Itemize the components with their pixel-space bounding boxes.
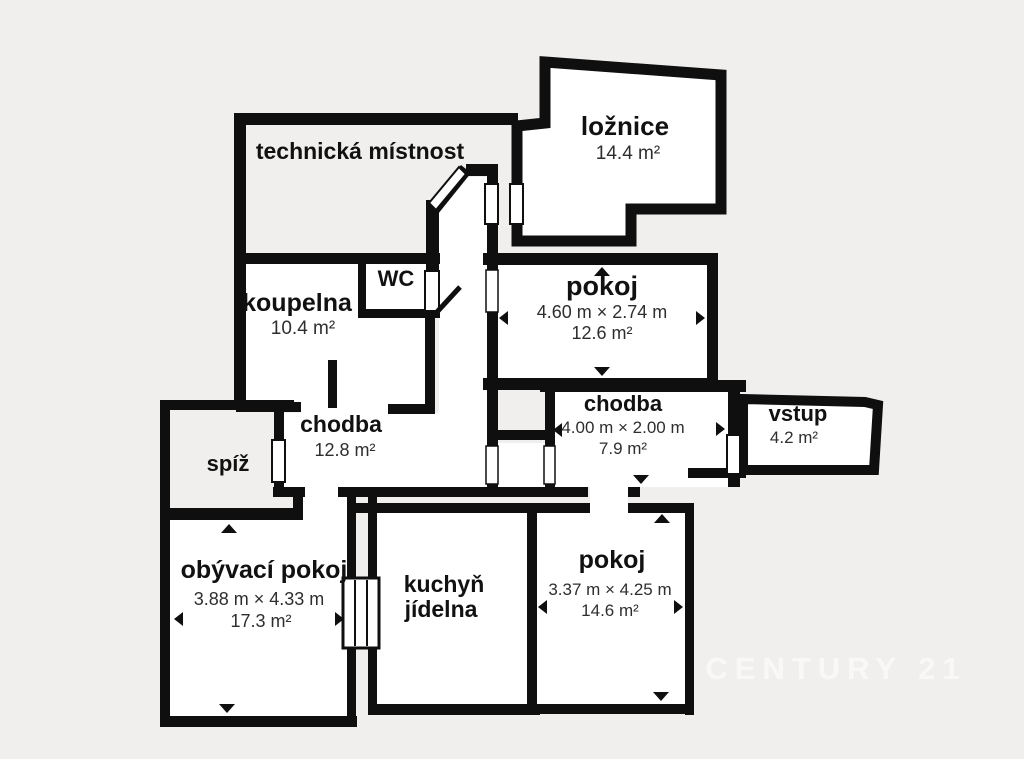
wall	[425, 309, 435, 409]
window-chodba-wall	[485, 184, 498, 224]
label-vstup-area: 4.2 m²	[770, 428, 819, 447]
wall	[685, 503, 694, 715]
wall	[234, 113, 518, 125]
wall	[707, 253, 718, 390]
door-wc	[425, 271, 439, 311]
wall	[388, 404, 435, 414]
label-pokoj-dolni-area: 14.6 m²	[581, 601, 639, 620]
wall	[160, 400, 294, 410]
wall	[368, 704, 540, 715]
wall	[358, 253, 366, 313]
label-technicka-mistnost: technická místnost	[256, 138, 465, 164]
label-chodba-prava-dims: 4.00 m × 2.00 m	[561, 418, 684, 437]
label-spiz: spíž	[207, 451, 250, 476]
wall	[234, 253, 440, 264]
wall	[160, 716, 357, 727]
label-obyvaci: obývací pokoj	[181, 556, 348, 584]
door-vstup	[727, 435, 740, 474]
label-chodba-stredni: chodba	[300, 411, 382, 437]
wall	[492, 430, 554, 440]
label-obyvaci-dims: 3.88 m × 4.33 m	[194, 589, 325, 609]
wall	[483, 253, 718, 265]
door-spiz	[272, 440, 285, 482]
label-pokoj-stredni-dims: 4.60 m × 2.74 m	[537, 302, 668, 322]
door-passage-right	[544, 446, 555, 484]
wall	[328, 360, 337, 408]
wall	[628, 503, 694, 513]
wall	[273, 487, 305, 497]
wall	[160, 508, 303, 520]
label-loznice-area: 14.4 m²	[596, 143, 660, 164]
label-loznice: ložnice	[581, 111, 669, 141]
door-pokoj-stredni	[486, 270, 498, 312]
floor-plan: technická místnost ložnice 14.4 m² koupe…	[0, 0, 1024, 759]
label-vstup: vstup	[769, 401, 828, 426]
wall	[160, 400, 170, 727]
label-chodba-prava: chodba	[584, 391, 663, 416]
label-kuchyn: kuchyň	[404, 571, 485, 597]
floor-plan-canvas: technická místnost ložnice 14.4 m² koupe…	[0, 0, 1024, 759]
label-pokoj-stredni-area: 12.6 m²	[571, 323, 632, 343]
label-pokoj-dolni: pokoj	[579, 546, 646, 574]
window-loznice-wall	[510, 184, 523, 224]
wall	[466, 164, 498, 176]
label-pokoj-stredni: pokoj	[566, 271, 638, 301]
century21-watermark: CENTURY 21	[705, 651, 966, 686]
double-door-obyvaci-kuchyn	[343, 578, 379, 648]
chodba-passage	[498, 443, 545, 487]
door-passage-left	[486, 446, 498, 484]
wall	[628, 487, 640, 497]
label-chodba-prava-area: 7.9 m²	[599, 439, 648, 458]
wall	[530, 704, 694, 714]
label-pokoj-dolni-dims: 3.37 m × 4.25 m	[548, 580, 671, 599]
label-chodba-stredni-area: 12.8 m²	[314, 440, 375, 460]
opening-chodba-pokoj-dolni	[590, 484, 628, 513]
label-koupelna: koupelna	[242, 289, 353, 317]
label-kuchyn-line2: jídelna	[404, 596, 478, 622]
opening-chodba-obyvaci	[305, 484, 338, 499]
wall	[527, 503, 537, 715]
wall	[350, 503, 590, 513]
label-koupelna-area: 10.4 m²	[271, 318, 335, 339]
label-obyvaci-area: 17.3 m²	[230, 611, 291, 631]
label-wc: WC	[378, 266, 415, 291]
